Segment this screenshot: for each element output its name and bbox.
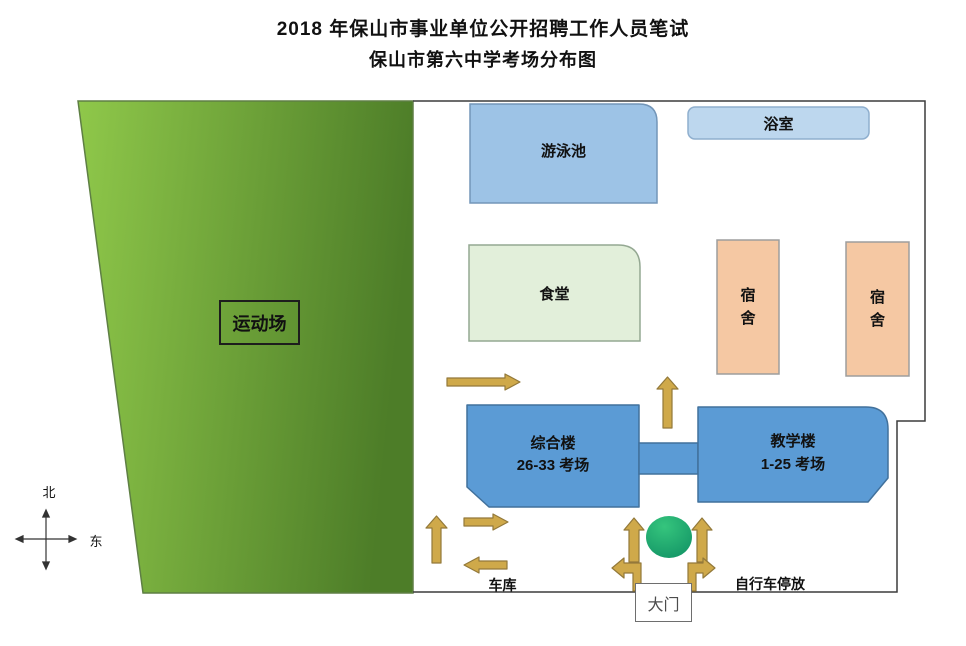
- bike-parking-label: 自行车停放: [731, 574, 809, 594]
- main-gate-box: 大门: [635, 583, 692, 622]
- arrow-up-center: [657, 377, 678, 428]
- dormitory-2-label: 宿舍: [846, 242, 909, 376]
- swimming-pool-label: 游泳池: [470, 104, 657, 196]
- complex-building-name: 综合楼: [530, 433, 575, 456]
- compass-north-label: 北: [38, 482, 60, 501]
- garage-label: 车库: [470, 575, 535, 595]
- sports-field-label: 运动场: [219, 300, 300, 345]
- compass-north-tip: [43, 510, 49, 517]
- exam-site-map: 2018 年保山市事业单位公开招聘工作人员笔试 保山市第六中学考场分布图 运动场…: [0, 0, 966, 646]
- arrow-right-lower: [464, 514, 508, 530]
- building-connector: [639, 443, 698, 474]
- complex-building-rooms: 26-33 考场: [517, 455, 590, 478]
- compass-west-tip: [16, 536, 23, 542]
- arrow-up-left: [426, 516, 447, 563]
- compass-south-tip: [43, 562, 49, 569]
- teaching-building-rooms: 1-25 考场: [761, 454, 825, 477]
- arrow-elbow-right: [688, 558, 715, 591]
- dormitory-1-label: 宿舍: [717, 240, 779, 374]
- page-subtitle: 保山市第六中学考场分布图: [0, 46, 966, 72]
- arrow-up-gate-left: [624, 518, 644, 562]
- arrow-left-lower: [464, 557, 507, 573]
- compass-rose: [16, 510, 76, 569]
- arrow-right-upper: [447, 374, 520, 390]
- teaching-building-label: 教学楼 1-25 考场: [698, 407, 888, 500]
- sports-field-shape: [78, 101, 413, 593]
- dormitory-2-text: 宿舍: [870, 286, 885, 333]
- bath-house-label: 浴室: [688, 107, 869, 139]
- roundabout-circle: [646, 516, 692, 558]
- dormitory-1-text: 宿舍: [741, 284, 756, 331]
- complex-building-label: 综合楼 26-33 考场: [467, 405, 639, 505]
- compass-east-label: 东: [85, 531, 107, 550]
- cafeteria-label: 食堂: [469, 245, 640, 341]
- compass-east-tip: [69, 536, 76, 542]
- teaching-building-name: 教学楼: [770, 431, 815, 454]
- page-title: 2018 年保山市事业单位公开招聘工作人员笔试: [0, 14, 966, 41]
- arrow-up-gate-right: [692, 518, 712, 562]
